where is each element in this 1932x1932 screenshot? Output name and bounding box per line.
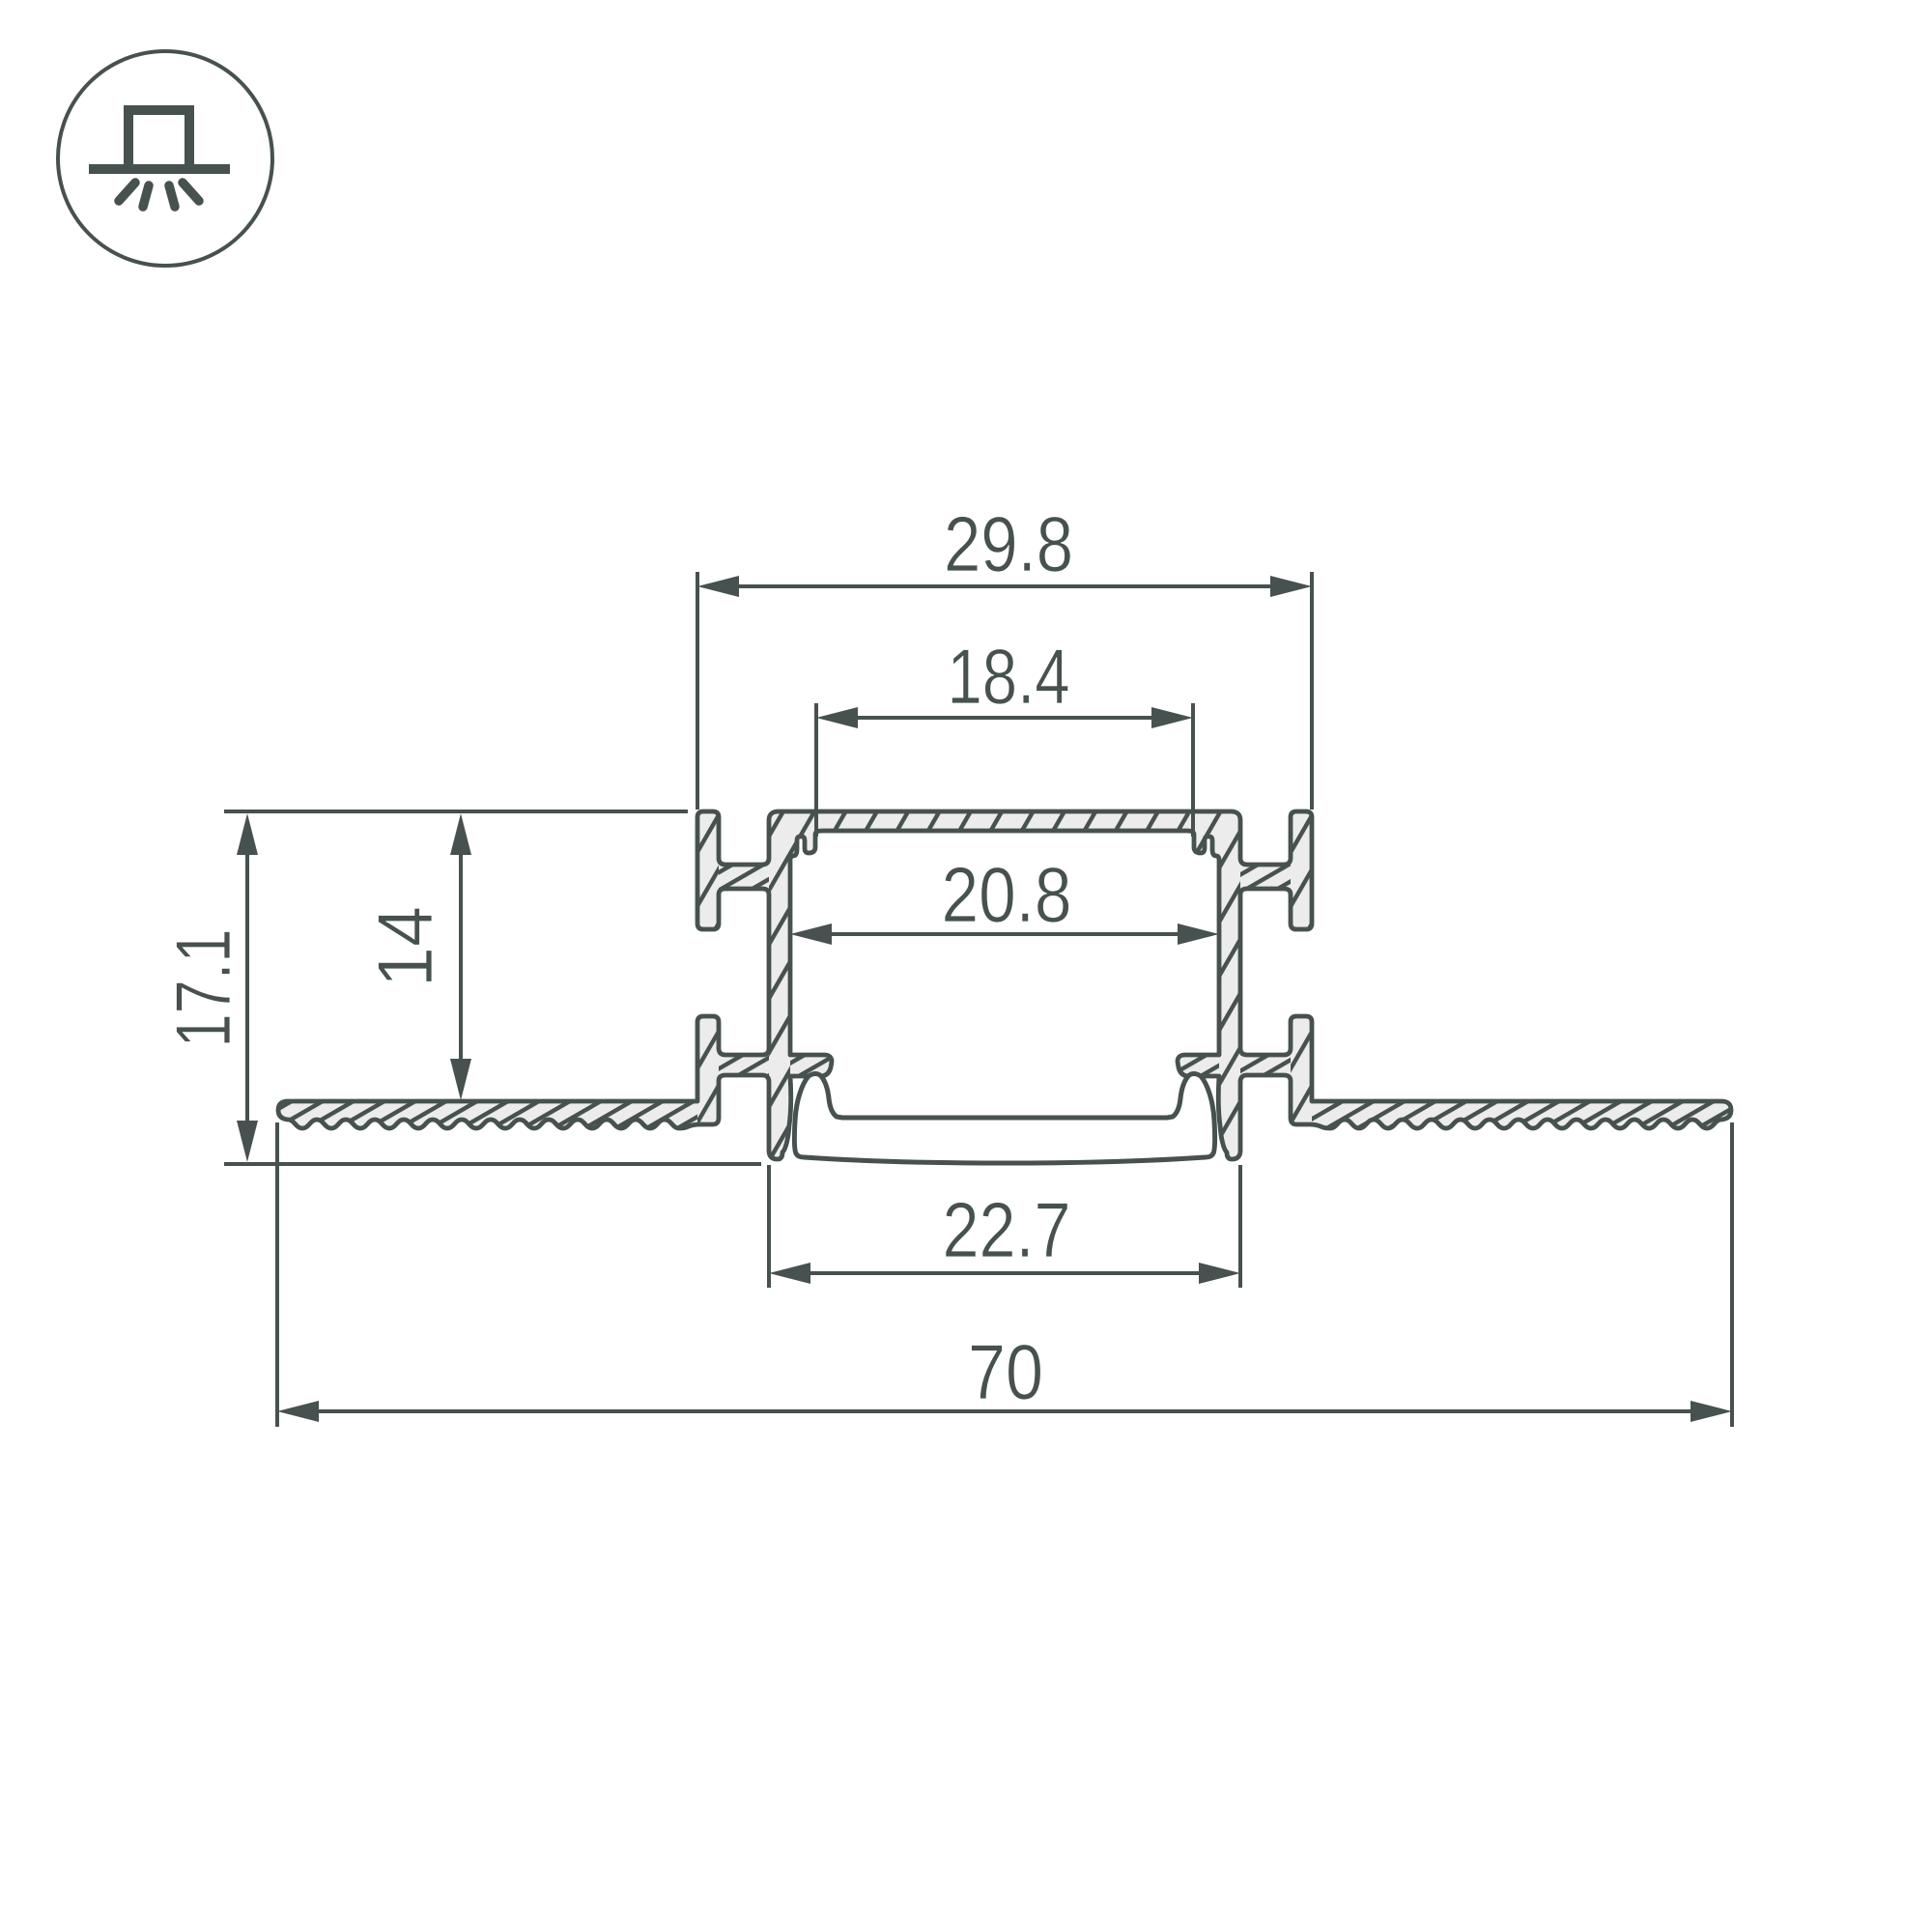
svg-text:20.8: 20.8 — [942, 852, 1072, 939]
svg-text:17.1: 17.1 — [160, 929, 247, 1048]
svg-text:18.4: 18.4 — [948, 634, 1070, 721]
svg-text:70: 70 — [968, 1329, 1043, 1416]
svg-text:29.8: 29.8 — [944, 501, 1073, 588]
svg-text:22.7: 22.7 — [943, 1187, 1071, 1274]
svg-text:14: 14 — [362, 906, 449, 987]
